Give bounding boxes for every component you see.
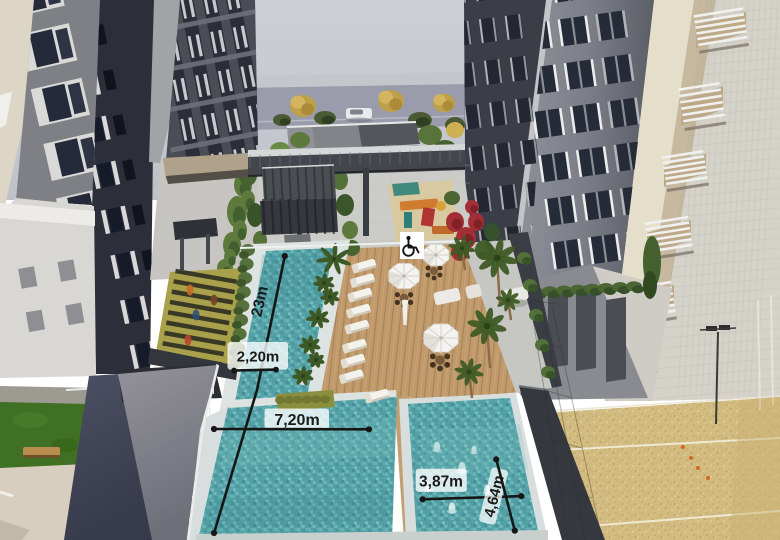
svg-text:2,20m: 2,20m bbox=[237, 349, 280, 366]
svg-text:7,20m: 7,20m bbox=[274, 412, 319, 429]
svg-text:3,87m: 3,87m bbox=[419, 474, 463, 491]
